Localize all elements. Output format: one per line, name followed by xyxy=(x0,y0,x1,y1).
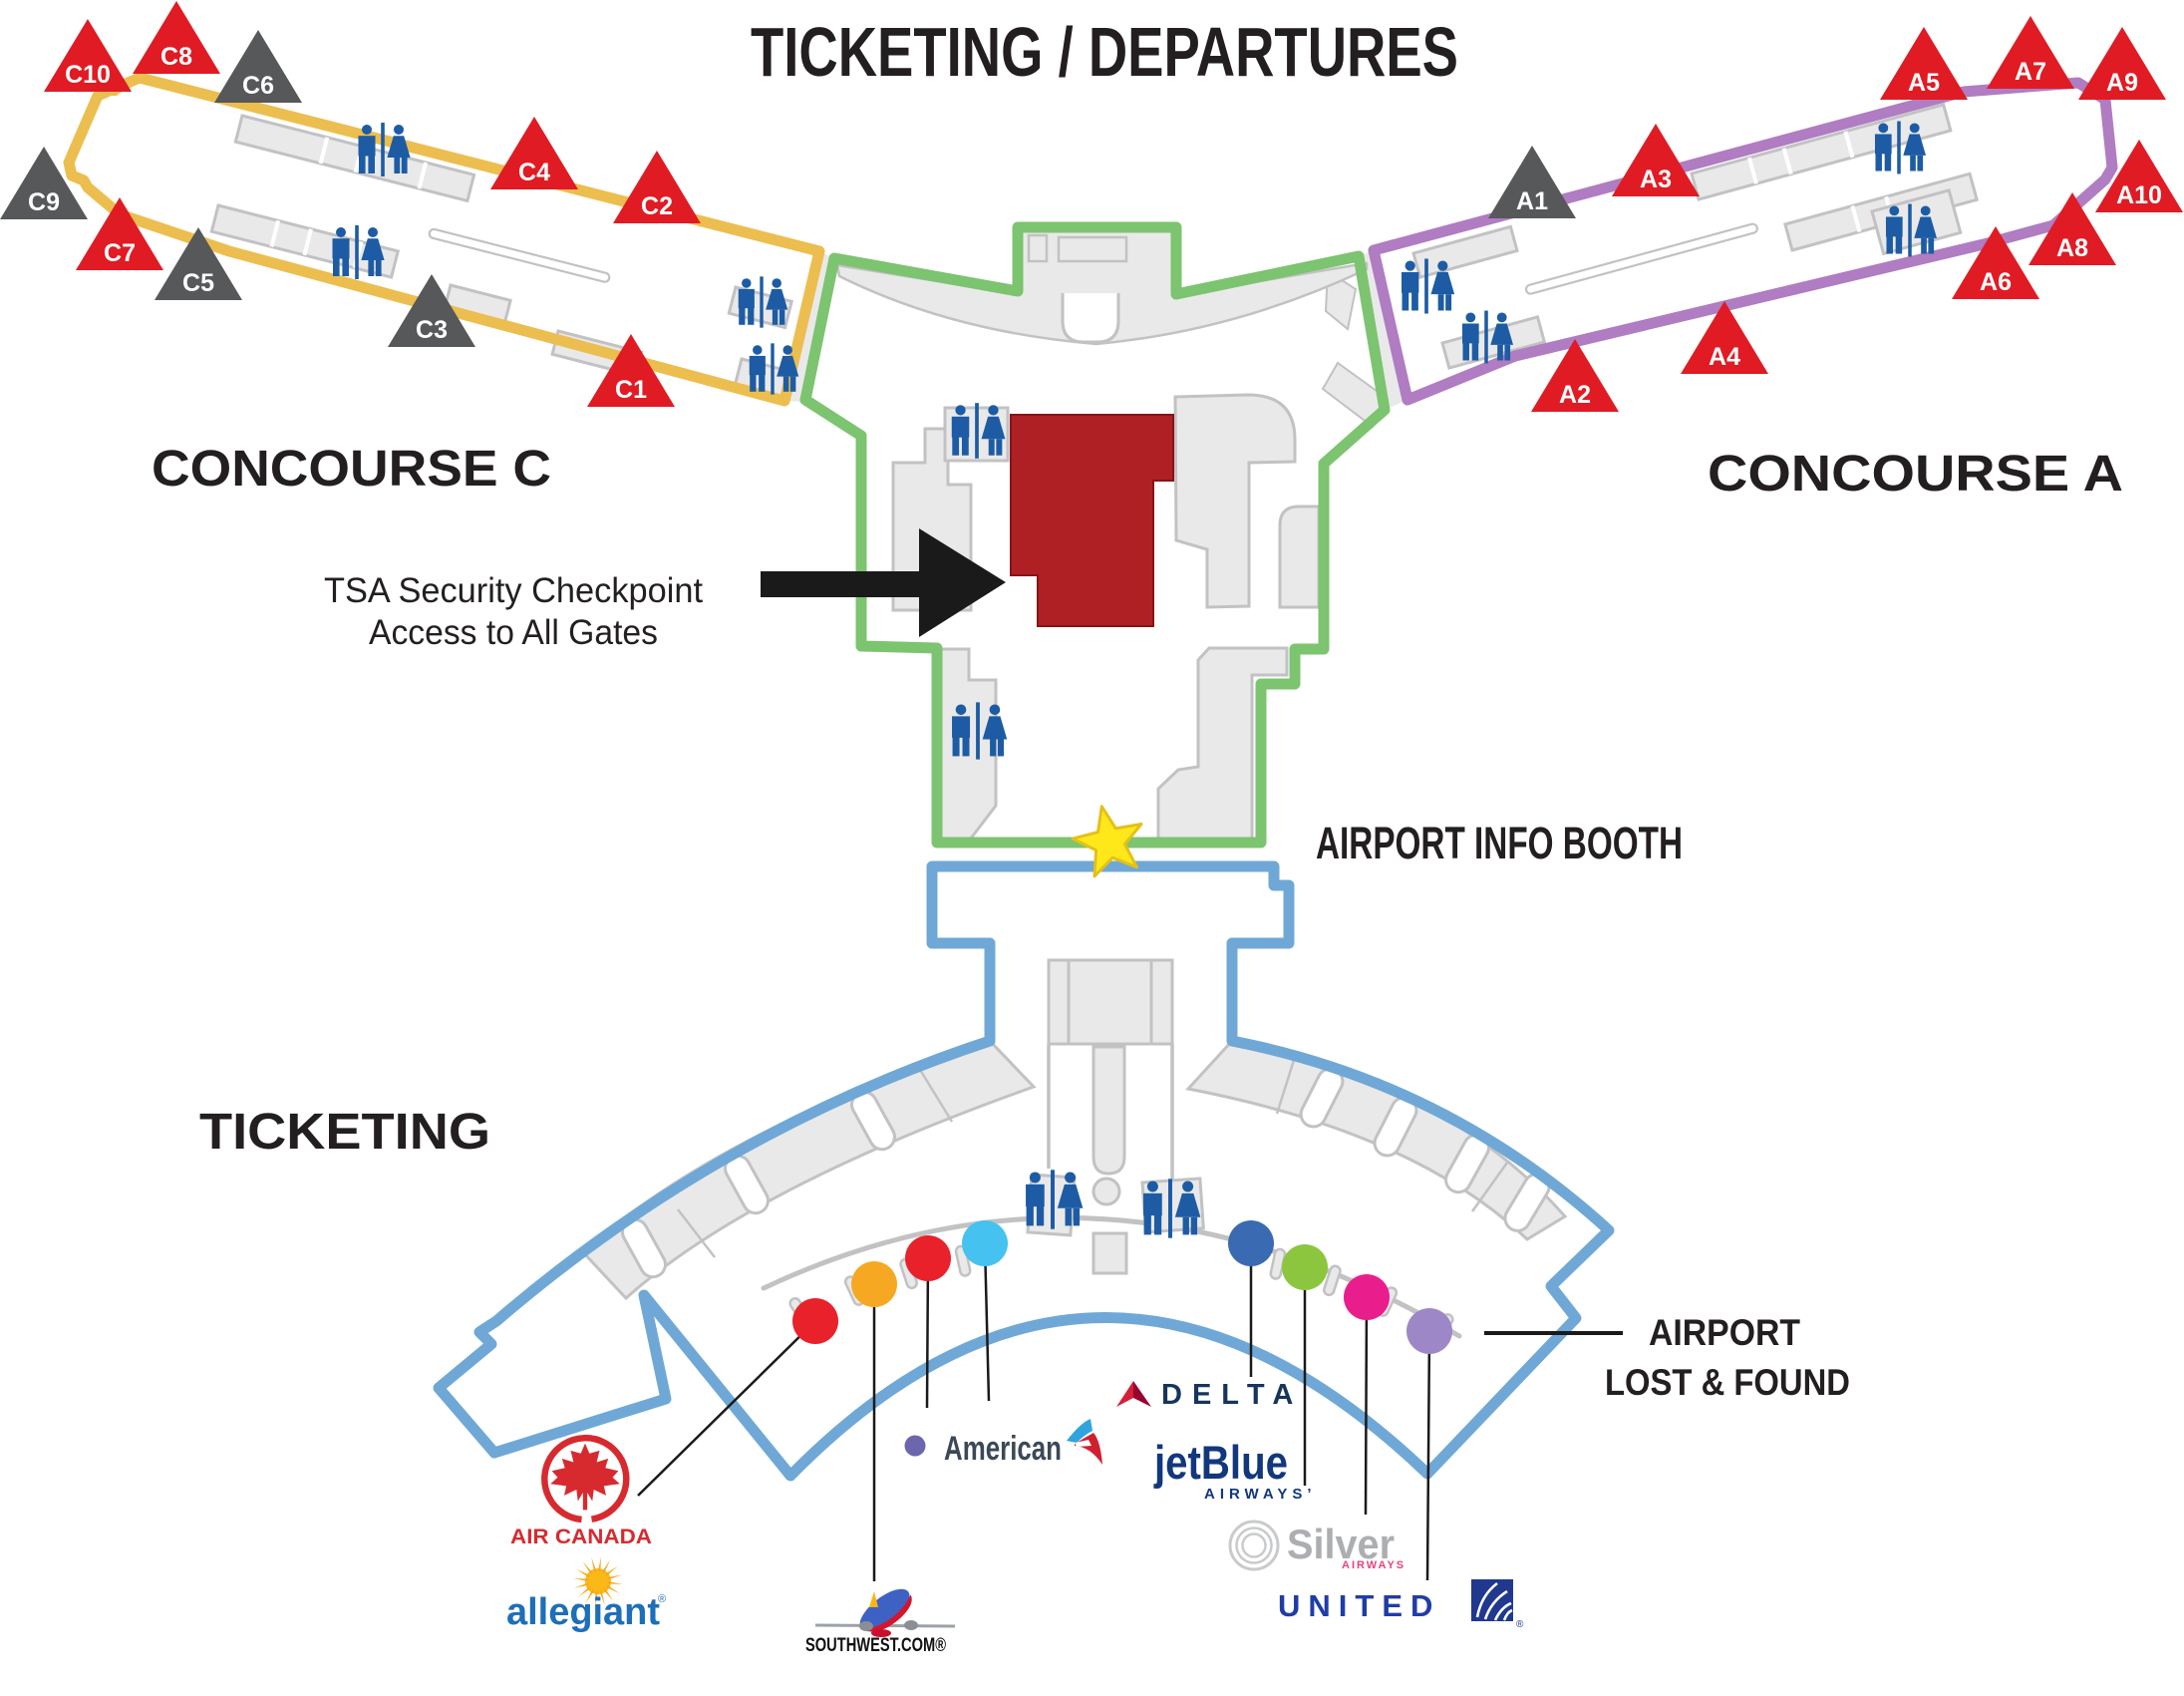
svg-text:AIRPORT INFO BOOTH: AIRPORT INFO BOOTH xyxy=(1316,818,1683,868)
svg-text:A2: A2 xyxy=(1559,381,1591,409)
svg-text:jetBlue: jetBlue xyxy=(1153,1436,1288,1489)
svg-text:C1: C1 xyxy=(615,376,647,404)
svg-text:Access to All Gates: Access to All Gates xyxy=(369,613,658,652)
svg-text:CONCOURSE C: CONCOURSE C xyxy=(152,440,551,497)
svg-text:A6: A6 xyxy=(1980,268,2012,296)
svg-text:CONCOURSE A: CONCOURSE A xyxy=(1708,445,2123,502)
svg-text:DELTA: DELTA xyxy=(1161,1379,1303,1411)
svg-text:C10: C10 xyxy=(65,61,111,89)
svg-text:TSA Security Checkpoint: TSA Security Checkpoint xyxy=(324,571,703,610)
svg-text:®: ® xyxy=(1516,1619,1524,1630)
svg-text:A9: A9 xyxy=(2106,69,2138,97)
svg-text:LOST & FOUND: LOST & FOUND xyxy=(1605,1362,1850,1403)
svg-text:A4: A4 xyxy=(1709,343,1740,371)
svg-text:AIRWAYS’: AIRWAYS’ xyxy=(1204,1486,1317,1503)
svg-text:A5: A5 xyxy=(1908,69,1940,97)
svg-text:A7: A7 xyxy=(2015,58,2046,86)
svg-text:C4: C4 xyxy=(518,159,550,186)
svg-text:A3: A3 xyxy=(1640,166,1672,193)
svg-text:C2: C2 xyxy=(641,192,673,220)
svg-text:A1: A1 xyxy=(1516,187,1548,215)
svg-text:®: ® xyxy=(658,1593,666,1605)
svg-text:C3: C3 xyxy=(416,316,448,344)
svg-text:allegiant: allegiant xyxy=(506,1591,660,1633)
svg-text:TICKETING / DEPARTURES: TICKETING / DEPARTURES xyxy=(751,13,1458,91)
svg-text:AIRPORT: AIRPORT xyxy=(1649,1312,1800,1353)
svg-text:C7: C7 xyxy=(104,239,136,267)
svg-text:AIR CANADA: AIR CANADA xyxy=(510,1526,652,1548)
svg-text:AIRWAYS: AIRWAYS xyxy=(1342,1559,1405,1571)
svg-text:UNITED: UNITED xyxy=(1278,1588,1440,1623)
svg-text:SOUTHWEST.COM®: SOUTHWEST.COM® xyxy=(805,1635,946,1656)
svg-text:A8: A8 xyxy=(2056,234,2088,262)
svg-text:C5: C5 xyxy=(182,269,214,297)
svg-text:C6: C6 xyxy=(242,72,274,100)
svg-text:American: American xyxy=(944,1430,1062,1468)
svg-text:A10: A10 xyxy=(2116,181,2162,209)
svg-text:C8: C8 xyxy=(160,43,192,71)
svg-text:TICKETING: TICKETING xyxy=(199,1103,490,1160)
svg-text:C9: C9 xyxy=(28,188,60,216)
